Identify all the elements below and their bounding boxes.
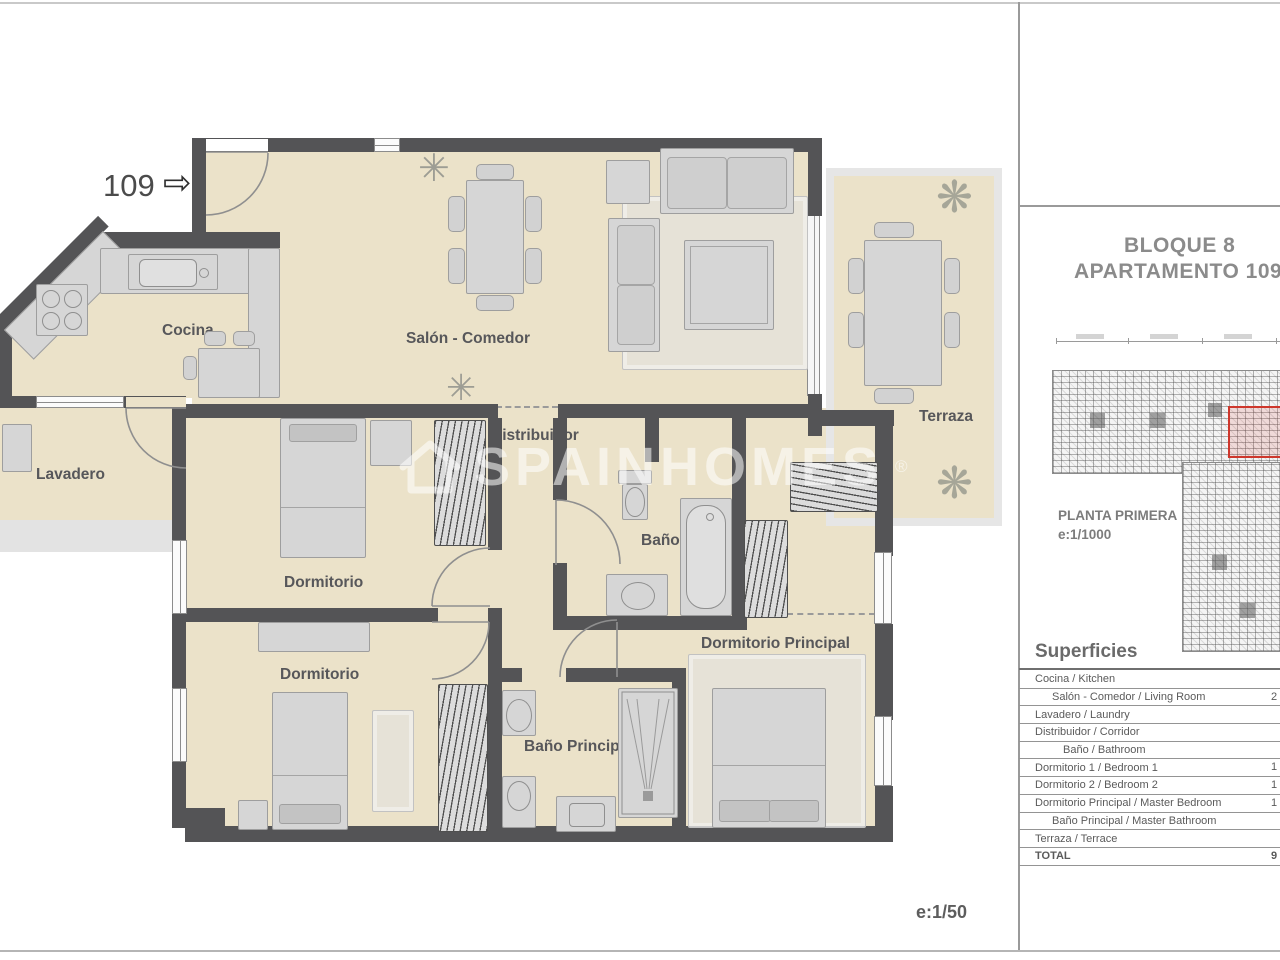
sofa-two-seat — [608, 218, 660, 352]
wall-segment — [558, 404, 820, 418]
room-label-salon: Salón - Comedor — [406, 330, 530, 348]
wall-segment — [488, 608, 502, 828]
master-bed — [712, 688, 826, 828]
terrace-chair — [944, 258, 960, 294]
superficies-row: Dormitorio 1 / Bedroom 11 — [1019, 759, 1280, 777]
superficies-row-value: 1 — [1271, 797, 1280, 809]
window — [172, 688, 187, 762]
wall-segment — [808, 138, 822, 216]
entry-door-opening — [206, 139, 268, 151]
superficies-row: Baño Principal / Master Bathroom — [1019, 813, 1280, 831]
floor-plan: 109 ⇨ ✳ ✳ ❋ ❋ Cocina Salón - Comedor Ter… — [0, 0, 1018, 960]
bed — [280, 418, 366, 558]
terrace-chair — [874, 388, 914, 404]
floorplan-page: { "page": { "scale_label": "e:1/50" }, "… — [0, 0, 1280, 960]
dining-table — [466, 180, 524, 294]
bed — [272, 692, 348, 830]
room-label-dormitorio-2: Dormitorio — [280, 666, 359, 684]
superficies-row: Salón - Comedor / Living Room2 — [1019, 689, 1280, 707]
nightstand — [370, 420, 412, 466]
toilet — [502, 776, 536, 828]
sidebar-top-rule — [1019, 205, 1280, 207]
room-label-dormitorio-principal: Dormitorio Principal — [701, 635, 850, 653]
bidet — [502, 690, 536, 736]
wall-segment — [553, 563, 567, 618]
nightstand — [238, 800, 268, 830]
room-label-dormitorio-1: Dormitorio — [284, 574, 363, 592]
wall-segment — [192, 148, 206, 240]
terrace-table — [864, 240, 942, 386]
unit-number: 109 — [103, 168, 155, 204]
superficies-row-label: Terraza / Terrace — [1019, 833, 1117, 845]
kitchen-sink — [128, 254, 218, 290]
room-label-bano-principal: Baño Principal — [524, 738, 633, 756]
superficies-row: Terraza / Terrace — [1019, 830, 1280, 848]
superficies-row-value: 2 — [1271, 691, 1280, 703]
superficies-row: Dormitorio 2 / Bedroom 21 — [1019, 777, 1280, 795]
window — [172, 540, 187, 614]
bedroom-rug — [372, 710, 414, 812]
window — [36, 396, 124, 408]
plant-icon: ❋ — [936, 176, 973, 220]
wall-segment — [488, 668, 522, 682]
superficies-heading-rule — [1019, 668, 1280, 670]
kitchen-hob — [36, 284, 88, 336]
washing-machine — [2, 424, 32, 472]
wall-segment — [553, 616, 747, 630]
wardrobe — [434, 420, 486, 546]
dining-chair — [476, 164, 514, 180]
terrace-chair — [944, 312, 960, 348]
room-label-lavadero: Lavadero — [36, 466, 105, 484]
dining-chair — [525, 248, 542, 284]
window — [874, 716, 892, 786]
opening-master — [787, 613, 875, 615]
toilet — [618, 470, 652, 484]
key-plan-dim-line — [1056, 341, 1280, 342]
key-plan-highlighted-unit — [1228, 406, 1280, 458]
superficies-row-label: Baño / Bathroom — [1019, 744, 1146, 756]
coffee-table — [684, 240, 774, 330]
dining-chair — [448, 248, 465, 284]
superficies-row-label: Dormitorio 2 / Bedroom 2 — [1019, 779, 1158, 791]
bathroom-sink — [556, 796, 616, 832]
shower — [618, 688, 678, 818]
dining-chair — [448, 196, 465, 232]
wardrobe — [744, 520, 788, 618]
kitchen-chair — [233, 331, 255, 346]
superficies-row-label: Baño Principal / Master Bathroom — [1019, 815, 1216, 827]
wall-segment — [488, 418, 502, 550]
key-plan-wing-vertical — [1182, 462, 1280, 652]
bathroom-sink — [606, 574, 668, 616]
sofa-three-seat — [660, 148, 794, 214]
wall-segment — [186, 608, 438, 622]
key-plan-caption-line2: e:1/1000 — [1058, 527, 1111, 542]
room-label-bano: Baño — [641, 532, 680, 550]
wall-segment — [186, 404, 498, 418]
superficies-row-value: 1 — [1271, 779, 1280, 791]
superficies-row: TOTAL9 — [1019, 848, 1280, 866]
plan-scale-label: e:1/50 — [916, 902, 967, 923]
wall-segment — [185, 808, 225, 834]
sidebar-title-line2: APARTAMENTO 109 — [1074, 260, 1280, 284]
superficies-row-label: TOTAL — [1019, 850, 1071, 862]
superficies-row: Cocina / Kitchen — [1019, 671, 1280, 689]
window — [874, 552, 892, 624]
terrace-chair — [848, 312, 864, 348]
kitchen-chair — [183, 356, 197, 380]
superficies-row: Lavadero / Laundry — [1019, 706, 1280, 724]
laundry-threshold — [0, 520, 176, 552]
entry-arrow-icon: ⇨ — [163, 163, 192, 203]
superficies-heading: Superficies — [1035, 641, 1137, 663]
kitchen-table — [198, 348, 260, 398]
wall-segment — [645, 410, 659, 462]
kitchen-chair — [204, 331, 226, 346]
sidebar-title-line1: BLOQUE 8 — [1124, 234, 1235, 258]
superficies-row-label: Cocina / Kitchen — [1019, 673, 1115, 685]
laundry-door-opening — [126, 397, 186, 407]
superficies-rows: Cocina / KitchenSalón - Comedor / Living… — [1019, 671, 1280, 866]
terrace-chair — [874, 222, 914, 238]
toilet-bowl — [622, 484, 648, 520]
terrace-sliding-door — [807, 214, 820, 396]
superficies-row: Distribuidor / Corridor — [1019, 724, 1280, 742]
superficies-row-label: Distribuidor / Corridor — [1019, 726, 1140, 738]
desk — [258, 622, 370, 652]
key-plan-caption-line1: PLANTA PRIMERA — [1058, 508, 1177, 523]
wall-segment — [553, 418, 567, 500]
plant-icon: ❋ — [936, 462, 973, 506]
superficies-row-label: Dormitorio 1 / Bedroom 1 — [1019, 762, 1158, 774]
opening-distribuidor — [496, 406, 558, 408]
superficies-row-label: Lavadero / Laundry — [1019, 709, 1130, 721]
superficies-row-value: 1 — [1271, 761, 1280, 773]
terrace-chair — [848, 258, 864, 294]
room-label-terraza: Terraza — [919, 408, 973, 426]
bathtub — [680, 498, 732, 616]
wardrobe — [790, 462, 878, 512]
window — [374, 138, 400, 152]
wardrobe — [438, 684, 488, 832]
wall-segment — [172, 404, 186, 828]
side-table — [606, 160, 650, 204]
superficies-row: Baño / Bathroom — [1019, 742, 1280, 760]
ceiling-fan-icon: ✳ — [446, 370, 476, 406]
superficies-row: Dormitorio Principal / Master Bedroom1 — [1019, 795, 1280, 813]
wall-segment — [566, 668, 686, 682]
superficies-row-label: Salón - Comedor / Living Room — [1019, 691, 1205, 703]
dining-chair — [476, 295, 514, 311]
wall-segment — [0, 328, 12, 400]
dining-chair — [525, 196, 542, 232]
key-plan — [1040, 325, 1280, 655]
ceiling-fan-icon: ✳ — [418, 150, 450, 188]
wall-segment — [875, 624, 893, 720]
superficies-row-label: Dormitorio Principal / Master Bedroom — [1019, 797, 1221, 809]
superficies-row-value: 9 — [1271, 850, 1280, 862]
